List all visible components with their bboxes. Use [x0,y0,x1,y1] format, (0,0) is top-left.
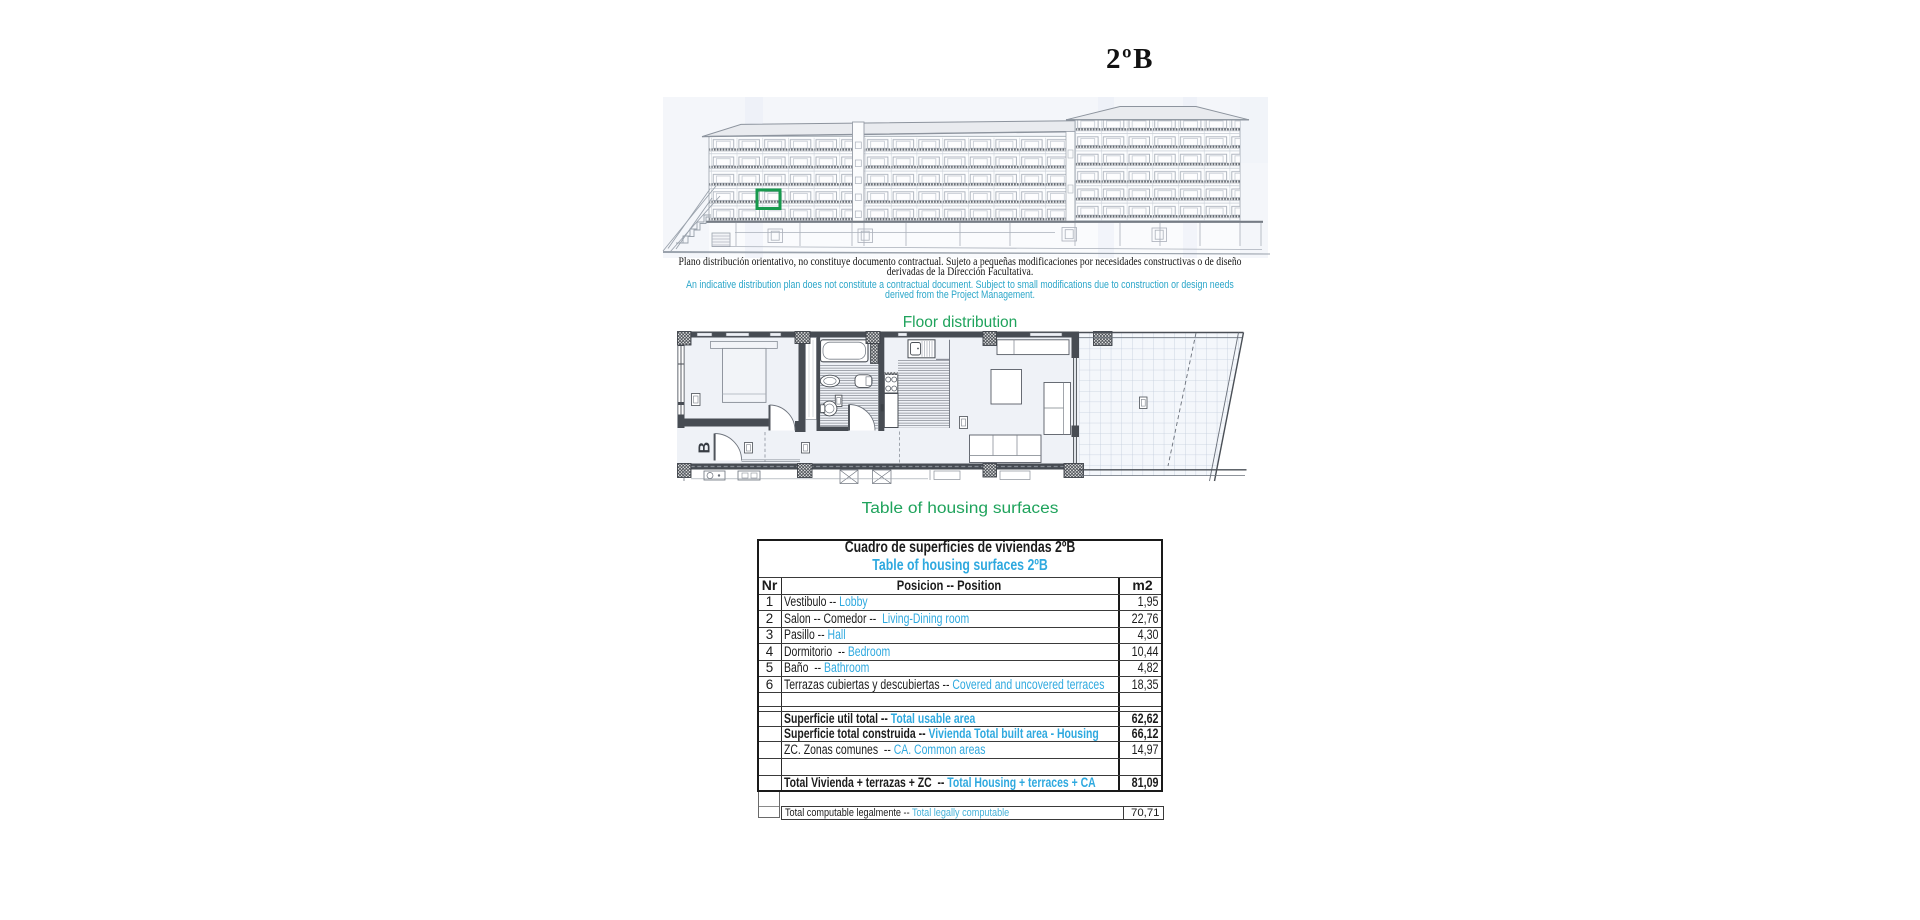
svg-text:B: B [697,442,714,454]
